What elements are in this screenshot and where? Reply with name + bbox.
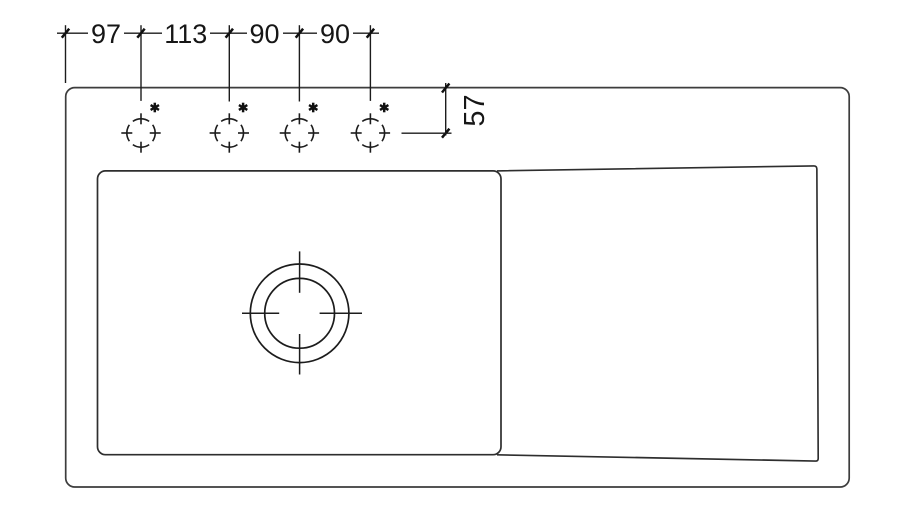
svg-text:90: 90	[320, 19, 350, 49]
svg-text:57: 57	[459, 94, 491, 126]
svg-text:90: 90	[249, 19, 279, 49]
svg-text:113: 113	[164, 19, 207, 49]
svg-text:97: 97	[91, 19, 121, 49]
